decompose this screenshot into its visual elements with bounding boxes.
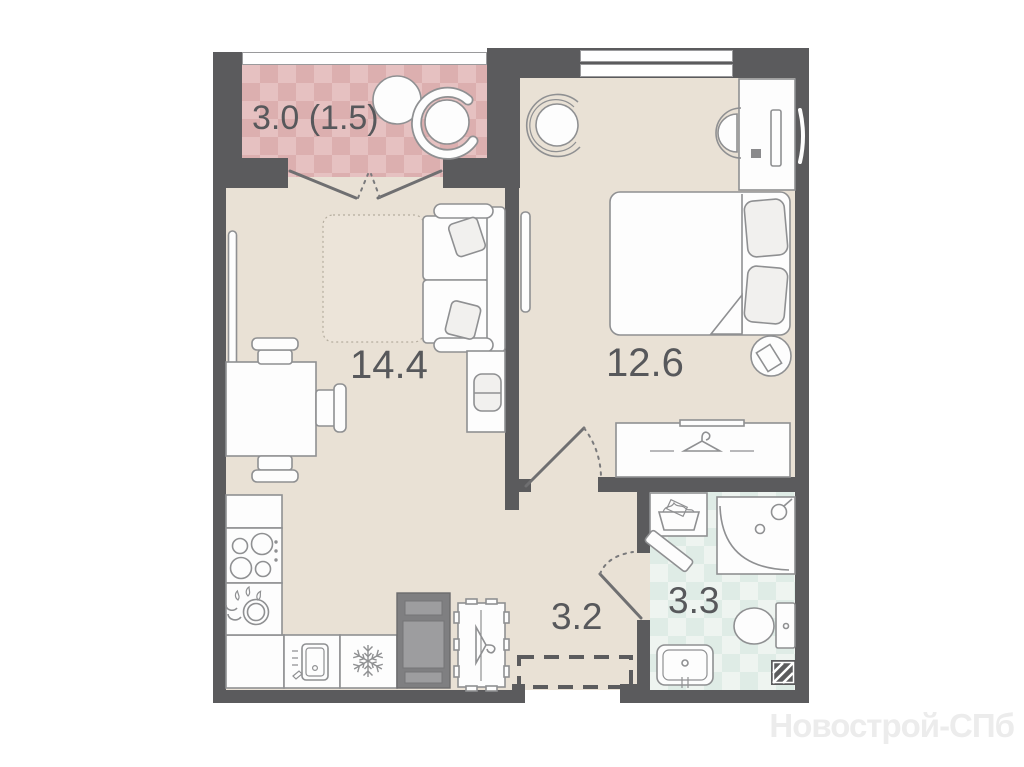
bedroom-armchair <box>527 94 580 156</box>
bedroom-desk monitor-icon <box>716 79 803 190</box>
rug <box>323 215 424 342</box>
sofa <box>423 204 505 352</box>
dish-rack-icon <box>226 583 282 635</box>
developer-watermark: Новострой-СПб <box>769 707 1014 745</box>
duct-hatch-icon <box>771 660 796 685</box>
floor-plan: 3.0 (1.5) 14.4 12.6 3.2 3.3 Новострой-СП… <box>0 0 1024 767</box>
tall-cabinet <box>397 593 450 688</box>
bedside-table <box>751 336 791 376</box>
bedroom-door <box>526 428 601 486</box>
shower-icon <box>717 497 795 574</box>
furniture-layer <box>0 0 1024 767</box>
living-area-label: 14.4 <box>350 343 428 388</box>
bedroom-wardrobe hanger-icon <box>616 420 790 477</box>
balcony-area-label: 3.0 (1.5) <box>252 99 379 138</box>
hallway-area-label: 3.2 <box>551 596 602 638</box>
fridge snowflake-icon <box>340 635 397 688</box>
bedroom-area-label: 12.6 <box>606 341 684 386</box>
balcony-chair <box>417 92 473 154</box>
hall-wardrobe hanger-icon <box>454 599 509 691</box>
kitchen-sink-icon <box>284 635 340 688</box>
bathroom-area-label: 3.3 <box>668 580 719 622</box>
balcony-door <box>290 171 441 198</box>
laundry-basket-icon <box>650 493 707 536</box>
stove-burners-icon <box>226 528 282 583</box>
bed <box>610 192 790 335</box>
washbasin-icon <box>657 645 713 688</box>
living-desk <box>467 351 505 432</box>
dining-table <box>226 338 346 482</box>
toilet-icon <box>734 603 795 648</box>
bedroom-tv-icon <box>521 212 530 312</box>
entrance-zone-dashed <box>519 657 631 687</box>
